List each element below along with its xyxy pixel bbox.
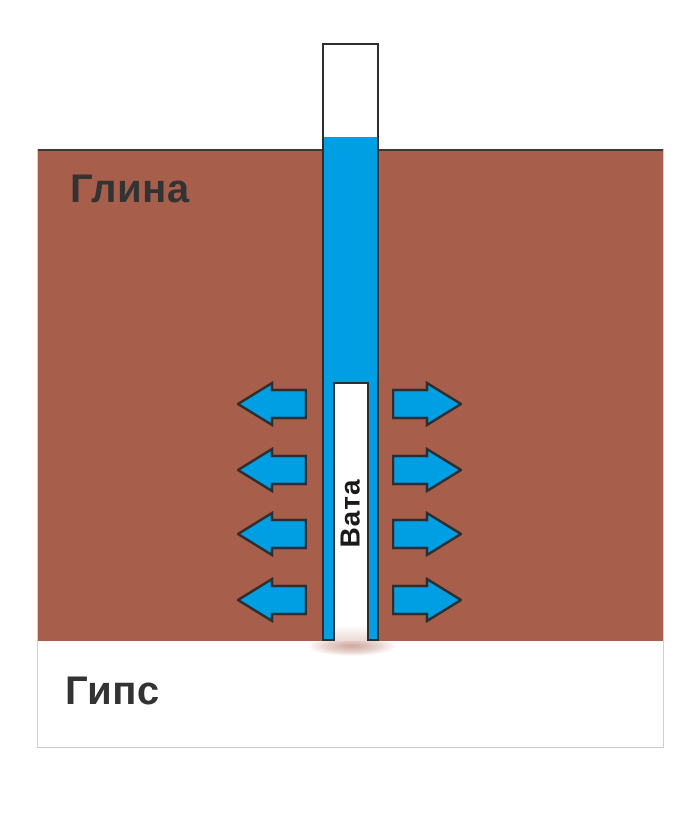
cotton-plug: Вата (333, 382, 369, 641)
flow-arrow-left-icon (237, 381, 307, 427)
gypsum-label: Гипс (65, 671, 160, 711)
cotton-plug-label: Вата (335, 478, 367, 547)
gypsum-layer: Гипс (38, 641, 663, 747)
flow-arrow-right-icon (392, 381, 462, 427)
flow-arrow-right-icon (392, 577, 462, 623)
flow-arrow-left-icon (237, 577, 307, 623)
diagram-canvas: Глина Гипс Вата (0, 0, 700, 818)
flow-arrow-left-icon (237, 447, 307, 493)
flow-arrow-right-icon (392, 447, 462, 493)
clay-label: Глина (70, 169, 190, 209)
flow-arrow-right-icon (392, 511, 462, 557)
flow-arrow-left-icon (237, 511, 307, 557)
